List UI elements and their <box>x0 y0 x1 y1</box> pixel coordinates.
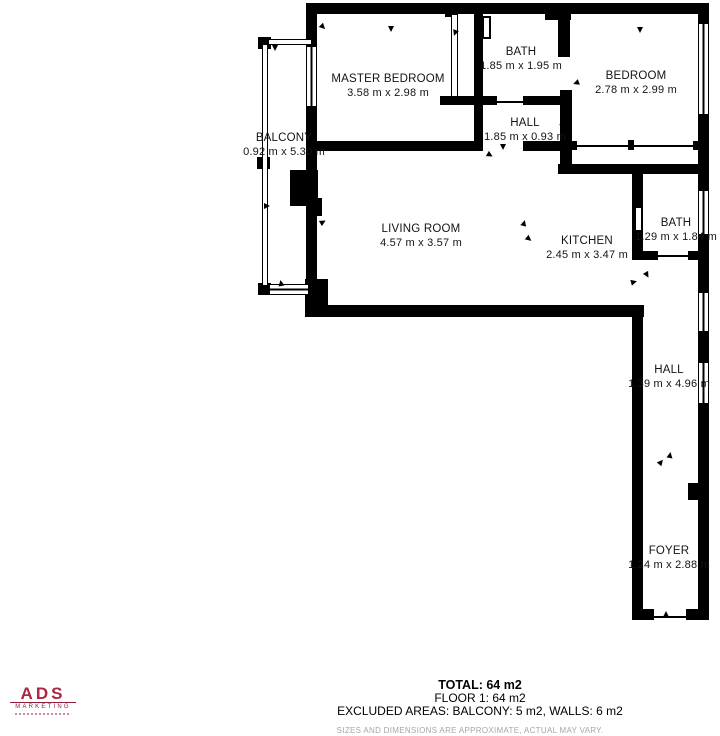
door-tick <box>663 611 669 617</box>
door-tick <box>272 45 278 51</box>
room-dims: 1.24 m x 2.88 m <box>628 558 710 572</box>
room-label-hall-right: HALL 1.39 m x 4.96 m <box>628 363 710 391</box>
room-dims: 2.45 m x 3.47 m <box>546 248 628 262</box>
door-tick <box>525 235 533 243</box>
wall-bedroom-bottom <box>558 164 708 174</box>
room-name: BATH <box>661 217 692 229</box>
window-bedroom-right <box>698 23 709 115</box>
wardrobe-line <box>577 145 695 147</box>
room-label-living-room: LIVING ROOM 4.57 m x 3.57 m <box>380 222 462 250</box>
room-name: BATH <box>506 46 537 58</box>
door-tick <box>630 278 637 285</box>
wall-foyer-bottom-left <box>632 609 654 620</box>
room-name: MASTER BEDROOM <box>331 73 444 85</box>
door-tick <box>667 452 674 459</box>
room-dims: 2.78 m x 2.99 m <box>595 83 677 97</box>
room-dims: 1.39 m x 4.96 m <box>628 377 710 391</box>
room-dims: 1.85 m x 1.95 m <box>480 59 562 73</box>
door-tick <box>572 79 580 87</box>
logo-brand: ADS <box>10 686 76 702</box>
window-hall-right-1 <box>698 292 709 332</box>
room-dims: 1.29 m x 1.84 m <box>635 230 717 244</box>
room-label-master-bedroom: MASTER BEDROOM 3.58 m x 2.98 m <box>331 72 444 100</box>
door-tick <box>388 26 394 32</box>
room-name: FOYER <box>649 545 690 557</box>
door-threshold-entry <box>654 616 686 618</box>
chimney-extension <box>308 198 322 216</box>
wall-wing-left <box>632 305 643 620</box>
door-tick <box>657 458 665 466</box>
balcony-rail-left <box>262 45 268 285</box>
room-name: KITCHEN <box>561 235 613 247</box>
room-label-foyer: FOYER 1.24 m x 2.88 m <box>628 544 710 572</box>
excluded-areas: EXCLUDED AREAS: BALCONY: 5 m2, WALLS: 6 … <box>240 705 720 718</box>
door-tick <box>520 219 527 226</box>
wardrobe-stub-right <box>693 141 702 150</box>
window-master-balcony <box>306 46 317 107</box>
wardrobe-stub-left <box>568 141 577 150</box>
room-dims: 4.57 m x 3.57 m <box>380 236 462 250</box>
door-threshold-bath2 <box>658 255 688 257</box>
disclaimer: SIZES AND DIMENSIONS ARE APPROXIMATE, AC… <box>235 726 705 735</box>
room-name: HALL <box>654 364 684 376</box>
closet-strip <box>451 15 458 96</box>
wall-hall-foyer-stub <box>688 483 709 500</box>
room-dims: 1.85 m x 0.93 m <box>484 130 566 144</box>
total-area: TOTAL: 64 m2 <box>240 678 720 692</box>
door-tick <box>264 203 270 209</box>
room-label-bedroom: BEDROOM 2.78 m x 2.99 m <box>595 69 677 97</box>
wall-bath2-bottom-left <box>632 251 658 260</box>
door-tick <box>319 23 327 31</box>
wall-bath2-bottom-right <box>688 251 709 260</box>
room-label-hall-top: HALL 1.85 m x 0.93 m <box>484 116 566 144</box>
wall-bath1-bottom-left <box>440 96 497 105</box>
door-tick <box>319 218 327 226</box>
room-name: BALCONY <box>256 132 312 144</box>
wall-top <box>306 3 708 14</box>
door-tick <box>476 119 482 125</box>
door-tick <box>390 144 396 150</box>
door-threshold-bath1 <box>497 101 523 103</box>
window-balcony-bottom <box>269 284 309 295</box>
wardrobe-stub-center <box>628 140 634 150</box>
room-dims: 0.92 m x 5.30 m <box>243 145 325 159</box>
room-label-balcony: BALCONY 0.92 m x 5.30 m <box>243 131 325 159</box>
logo-tagline <box>15 713 71 715</box>
door-tick <box>278 280 285 287</box>
logo-subtitle: MARKETING <box>10 702 76 711</box>
room-name: BEDROOM <box>606 70 667 82</box>
door-leaf-bath1 <box>482 16 491 39</box>
door-tick <box>643 271 651 279</box>
door-tick <box>486 151 494 159</box>
room-label-kitchen: KITCHEN 2.45 m x 3.47 m <box>546 234 628 262</box>
wall-foyer-bottom-right <box>686 609 709 620</box>
room-name: LIVING ROOM <box>382 223 461 235</box>
room-label-bath-top: BATH 1.85 m x 1.95 m <box>480 45 562 73</box>
company-logo: ADS MARKETING <box>10 686 76 715</box>
room-dims: 3.58 m x 2.98 m <box>331 86 444 100</box>
door-tick <box>500 144 506 150</box>
area-summary: TOTAL: 64 m2 FLOOR 1: 64 m2 EXCLUDED ARE… <box>240 678 720 718</box>
room-name: HALL <box>510 117 540 129</box>
wall-bottom <box>306 305 644 317</box>
floor-plan: MASTER BEDROOM 3.58 m x 2.98 m BATH 1.85… <box>0 0 720 736</box>
room-label-bath-right: BATH 1.29 m x 1.84 m <box>635 216 717 244</box>
door-tick <box>637 27 643 33</box>
